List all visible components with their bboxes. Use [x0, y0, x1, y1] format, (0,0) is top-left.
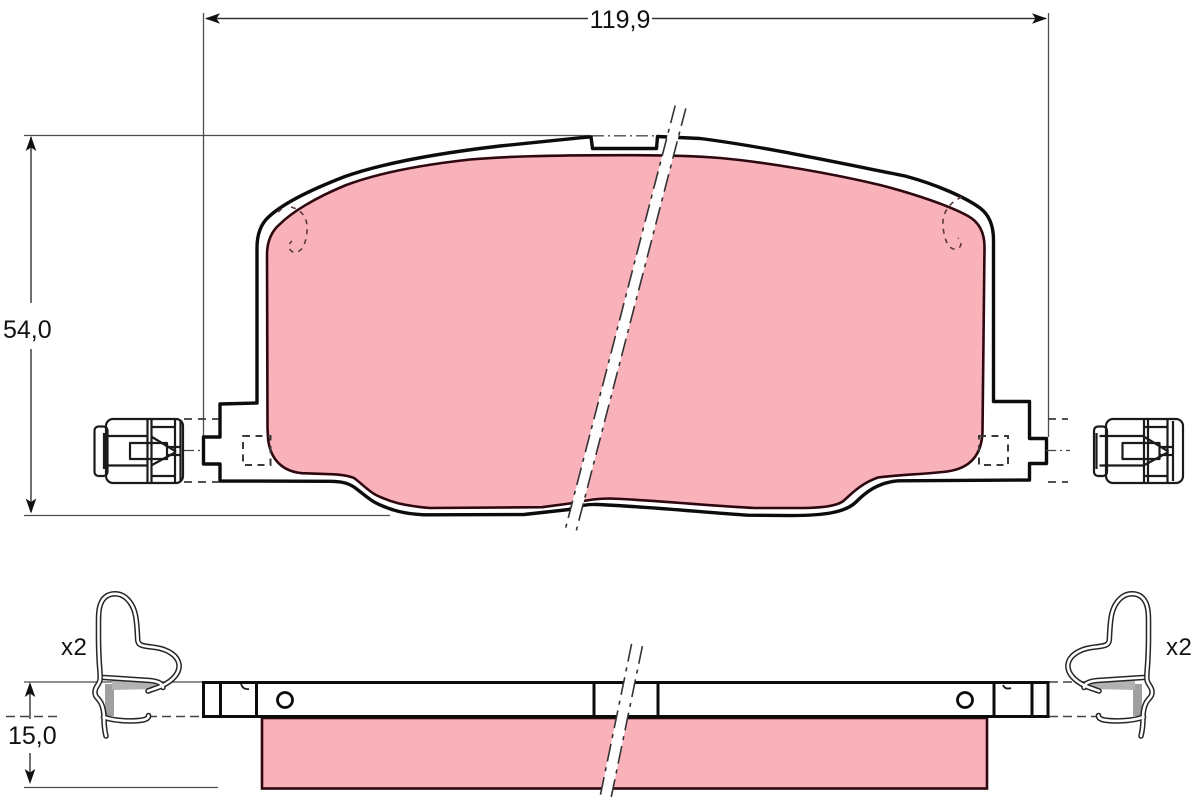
- svg-text:x2: x2: [61, 634, 87, 661]
- svg-text:15,0: 15,0: [8, 722, 57, 750]
- svg-text:x2: x2: [1166, 634, 1192, 661]
- svg-text:54,0: 54,0: [3, 316, 52, 344]
- svg-text:119,9: 119,9: [590, 6, 651, 34]
